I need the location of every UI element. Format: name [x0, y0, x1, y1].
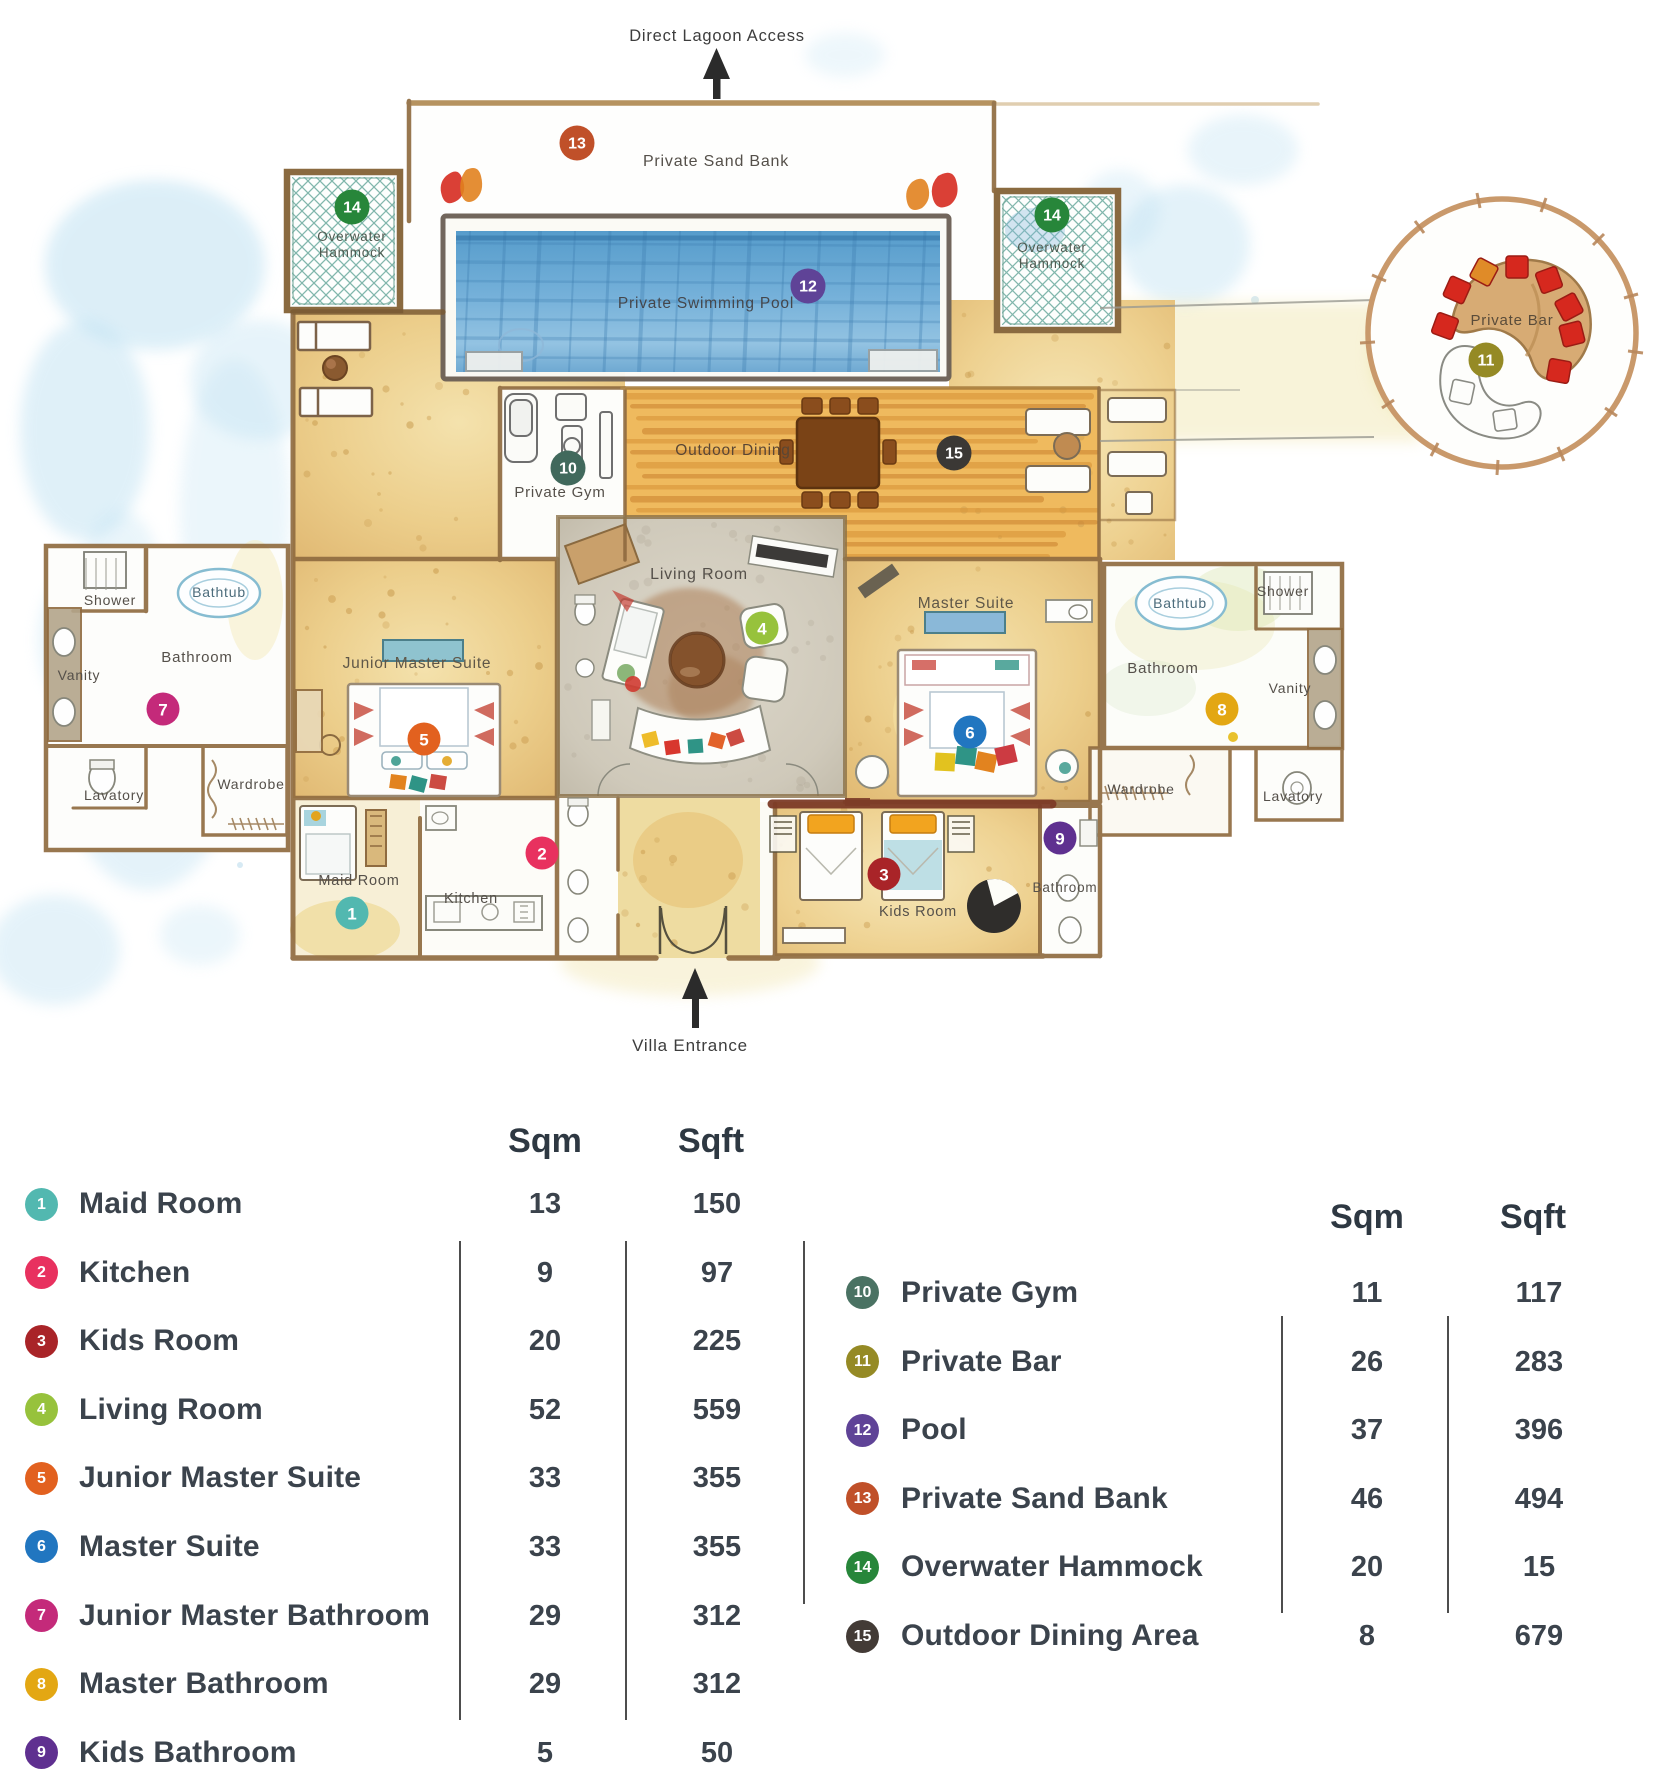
- svg-text:Bathroom: Bathroom: [161, 649, 232, 666]
- svg-text:Vanity: Vanity: [58, 667, 101, 683]
- svg-text:10: 10: [559, 461, 577, 478]
- svg-text:2: 2: [537, 845, 546, 864]
- svg-text:Hammock: Hammock: [1019, 256, 1085, 271]
- svg-text:Bathroom: Bathroom: [1033, 880, 1098, 895]
- svg-text:Bathtub: Bathtub: [1153, 595, 1207, 611]
- svg-text:Private Sand Bank: Private Sand Bank: [643, 153, 789, 170]
- svg-text:Living Room: Living Room: [650, 566, 748, 583]
- svg-text:Lavatory: Lavatory: [84, 787, 144, 803]
- svg-text:6: 6: [965, 724, 974, 743]
- svg-text:Maid Room: Maid Room: [318, 873, 399, 889]
- svg-text:Shower: Shower: [84, 592, 136, 608]
- svg-text:Overwater: Overwater: [317, 229, 386, 244]
- svg-text:Kitchen: Kitchen: [444, 891, 498, 907]
- svg-text:8: 8: [1217, 701, 1226, 720]
- svg-text:Overwater: Overwater: [1017, 240, 1086, 255]
- svg-text:11: 11: [1478, 353, 1495, 370]
- svg-text:4: 4: [757, 620, 767, 639]
- svg-text:14: 14: [343, 200, 361, 217]
- svg-text:Wardrobe: Wardrobe: [1107, 781, 1174, 797]
- svg-text:Bathroom: Bathroom: [1127, 660, 1198, 677]
- svg-text:Junior Master Suite: Junior Master Suite: [343, 655, 492, 672]
- svg-text:5: 5: [419, 731, 428, 750]
- svg-text:Vanity: Vanity: [1269, 680, 1312, 696]
- svg-text:12: 12: [799, 279, 817, 296]
- svg-text:Direct Lagoon Access: Direct Lagoon Access: [629, 27, 805, 45]
- svg-text:Outdoor Dining: Outdoor Dining: [675, 442, 790, 459]
- svg-text:Private Swimming Pool: Private Swimming Pool: [618, 295, 794, 312]
- svg-text:Lavatory: Lavatory: [1263, 788, 1323, 804]
- svg-text:7: 7: [158, 701, 167, 720]
- svg-text:3: 3: [879, 866, 888, 885]
- svg-text:14: 14: [1043, 208, 1061, 225]
- svg-text:Villa Entrance: Villa Entrance: [632, 1036, 748, 1055]
- svg-text:Bathtub: Bathtub: [192, 584, 246, 600]
- svg-text:Kids Room: Kids Room: [879, 904, 957, 920]
- svg-text:Master Suite: Master Suite: [918, 595, 1015, 612]
- svg-text:Wardrobe: Wardrobe: [217, 776, 284, 792]
- svg-text:1: 1: [347, 905, 356, 924]
- svg-text:Hammock: Hammock: [319, 245, 385, 260]
- svg-text:9: 9: [1055, 830, 1064, 849]
- svg-text:15: 15: [945, 446, 963, 463]
- svg-text:Private Gym: Private Gym: [514, 484, 605, 501]
- svg-text:Private Bar: Private Bar: [1471, 312, 1554, 329]
- svg-text:Shower: Shower: [1257, 583, 1309, 599]
- svg-text:13: 13: [568, 136, 586, 153]
